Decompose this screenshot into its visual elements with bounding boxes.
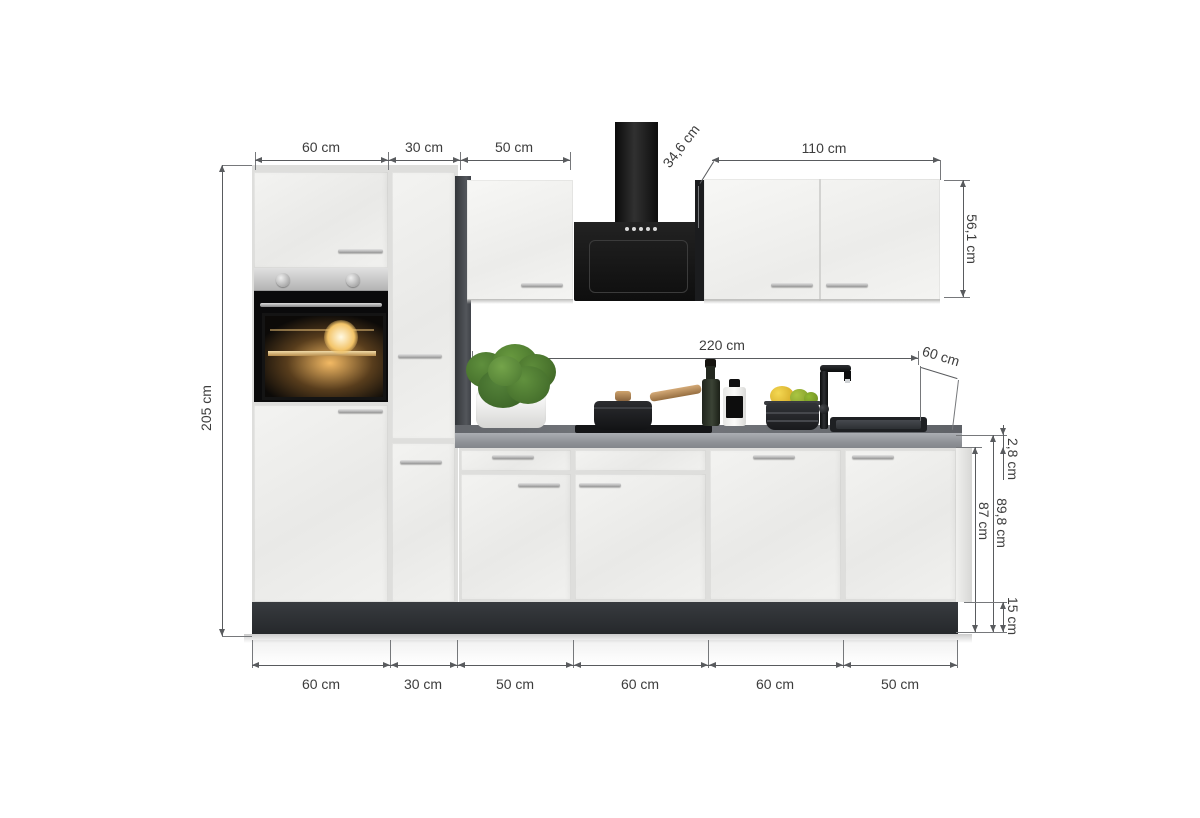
dim-arrow (219, 165, 225, 172)
hood-button (646, 227, 650, 231)
worktop-front-edge (455, 433, 962, 448)
tall-cabinet-60-upper-door (254, 172, 388, 268)
dim-line (712, 160, 940, 161)
dim-tick (920, 366, 921, 421)
base-cabinet-50-door (461, 474, 571, 600)
dim-arrow (911, 355, 918, 361)
bowl-stack (766, 403, 819, 430)
dim-tick (952, 380, 959, 430)
dim-label-total-height: 205 cm (198, 385, 214, 431)
dim-line (222, 165, 223, 636)
hood-button (653, 227, 657, 231)
door-handle (338, 409, 383, 413)
drawer-handle (492, 455, 534, 459)
wall-cabinet-110-side-panel (695, 180, 704, 301)
plant-foliage (488, 356, 522, 386)
door-handle (338, 249, 383, 253)
saucepan-lid-seam (594, 407, 652, 409)
door-handle (852, 455, 894, 459)
dim-label-bottom-60c: 60 cm (756, 676, 794, 692)
hood-button (632, 227, 636, 231)
dim-arrow (1000, 428, 1006, 435)
wall-cabinet-110-shadow (704, 299, 940, 304)
dim-arrow (389, 157, 396, 163)
dim-label-top-60: 60 cm (302, 139, 340, 155)
dim-arrow (574, 662, 581, 668)
dim-tick (698, 186, 699, 228)
hood-button (639, 227, 643, 231)
tall-cabinet-30-lower-door (392, 443, 455, 602)
dim-arrow (391, 662, 398, 668)
wall-cabinet-50-shadow (467, 299, 573, 304)
door-handle (771, 283, 813, 287)
oven-door-handle (260, 303, 382, 307)
dim-arrow (960, 290, 966, 297)
dim-arrow (458, 662, 465, 668)
dim-arrow (950, 662, 957, 668)
dim-label-wall-height: 56,1 cm (964, 214, 980, 264)
dim-tick (944, 180, 970, 181)
dim-label-bottom-30: 30 cm (404, 676, 442, 692)
floor-reflection (252, 640, 958, 664)
dim-tick (956, 447, 982, 448)
saucepan-lid-knob (615, 391, 631, 401)
dim-label-top-30: 30 cm (405, 139, 443, 155)
dim-label-worktop-depth: 60 cm (920, 343, 961, 369)
base-drawer-60 (575, 450, 706, 471)
dim-arrow (990, 625, 996, 632)
door-handle (398, 354, 442, 358)
faucet-riser (820, 371, 828, 429)
oven-knob (276, 273, 290, 287)
sink-base-cabinet-50-door (845, 450, 956, 600)
dim-arrow (709, 662, 716, 668)
dim-arrow (990, 435, 996, 442)
wall-cabinet-110-door-gap (819, 179, 821, 301)
saucepan-handle (649, 384, 702, 402)
dim-label-worktop-height: 89,8 cm (994, 498, 1010, 548)
door-handle (753, 455, 795, 459)
dim-label-run-width: 220 cm (699, 337, 745, 353)
dim-arrow (566, 662, 573, 668)
dim-arrow (972, 625, 978, 632)
dim-tick (957, 640, 958, 668)
dim-arrow (453, 157, 460, 163)
dim-arrow (960, 180, 966, 187)
oven-knob (346, 273, 360, 287)
dim-label-plinth-height: 15 cm (1005, 597, 1021, 635)
dim-arrow (252, 662, 259, 668)
dim-tick (222, 636, 252, 637)
door-handle (521, 283, 563, 287)
dim-tick (222, 165, 252, 166)
dim-arrow (563, 157, 570, 163)
base-cabinet-60-door (575, 474, 706, 600)
oven-lamp-glow (324, 320, 358, 354)
dim-arrow (255, 157, 262, 163)
base-cabinet-60-right-door (710, 450, 841, 600)
bowl-seam (766, 412, 819, 414)
dim-arrow (381, 157, 388, 163)
door-handle (400, 460, 442, 464)
bowl-seam (767, 420, 818, 422)
dim-arrow (701, 662, 708, 668)
oven-window (262, 313, 386, 400)
white-bottle-label (726, 396, 743, 418)
faucet-aerator (845, 379, 850, 383)
dim-arrow (383, 662, 390, 668)
tall-cabinet-30-upper-door (392, 172, 455, 439)
door-handle (579, 483, 621, 487)
dim-line (255, 160, 570, 161)
door-handle (518, 483, 560, 487)
base-right-side-panel (956, 448, 972, 602)
dim-label-top-50: 50 cm (495, 139, 533, 155)
saucepan-body (594, 401, 652, 430)
oven-rack (270, 329, 374, 331)
oven-baking-tray (268, 351, 376, 356)
dim-label-base-height: 87 cm (976, 502, 992, 540)
sink-basin (836, 420, 921, 429)
dark-bottle (702, 379, 720, 426)
wall-cabinet-110-doors (704, 179, 940, 301)
tall-cabinet-60-lower-door (254, 405, 388, 602)
dim-arrow (836, 662, 843, 668)
oven-control-panel (254, 268, 388, 291)
dim-arrow (972, 447, 978, 454)
dim-label-bottom-50b: 50 cm (881, 676, 919, 692)
dim-label-bottom-60b: 60 cm (621, 676, 659, 692)
hood-glass-front (589, 240, 688, 293)
dim-label-bottom-60a: 60 cm (302, 676, 340, 692)
dim-tick (570, 152, 571, 170)
dim-label-worktop-thickness: 2,8 cm (1005, 438, 1021, 480)
plinth (252, 602, 958, 634)
dim-label-bottom-50a: 50 cm (496, 676, 534, 692)
kitchen-dimension-diagram: 60 cm 30 cm 50 cm 110 cm 34,6 cm 56,1 cm… (0, 0, 1200, 818)
dim-tick (956, 435, 1007, 436)
hood-chimney (615, 122, 658, 223)
dim-line (921, 367, 958, 379)
dim-tick (940, 160, 941, 180)
dim-label-wall-depth: 34,6 cm (659, 121, 702, 170)
dim-arrow (933, 157, 940, 163)
dim-arrow (219, 629, 225, 636)
faucet-joint (819, 404, 829, 414)
base-drawer-50 (461, 450, 571, 471)
dim-tick (944, 297, 970, 298)
dim-tick (918, 351, 919, 365)
door-handle (826, 283, 868, 287)
dim-label-wall-width: 110 cm (802, 140, 847, 156)
dim-arrow (844, 662, 851, 668)
dim-arrow (461, 157, 468, 163)
wall-cabinet-50-door (467, 180, 573, 300)
hood-button (625, 227, 629, 231)
dim-tick (956, 632, 1007, 633)
dim-line (252, 665, 957, 666)
dim-arrow (450, 662, 457, 668)
